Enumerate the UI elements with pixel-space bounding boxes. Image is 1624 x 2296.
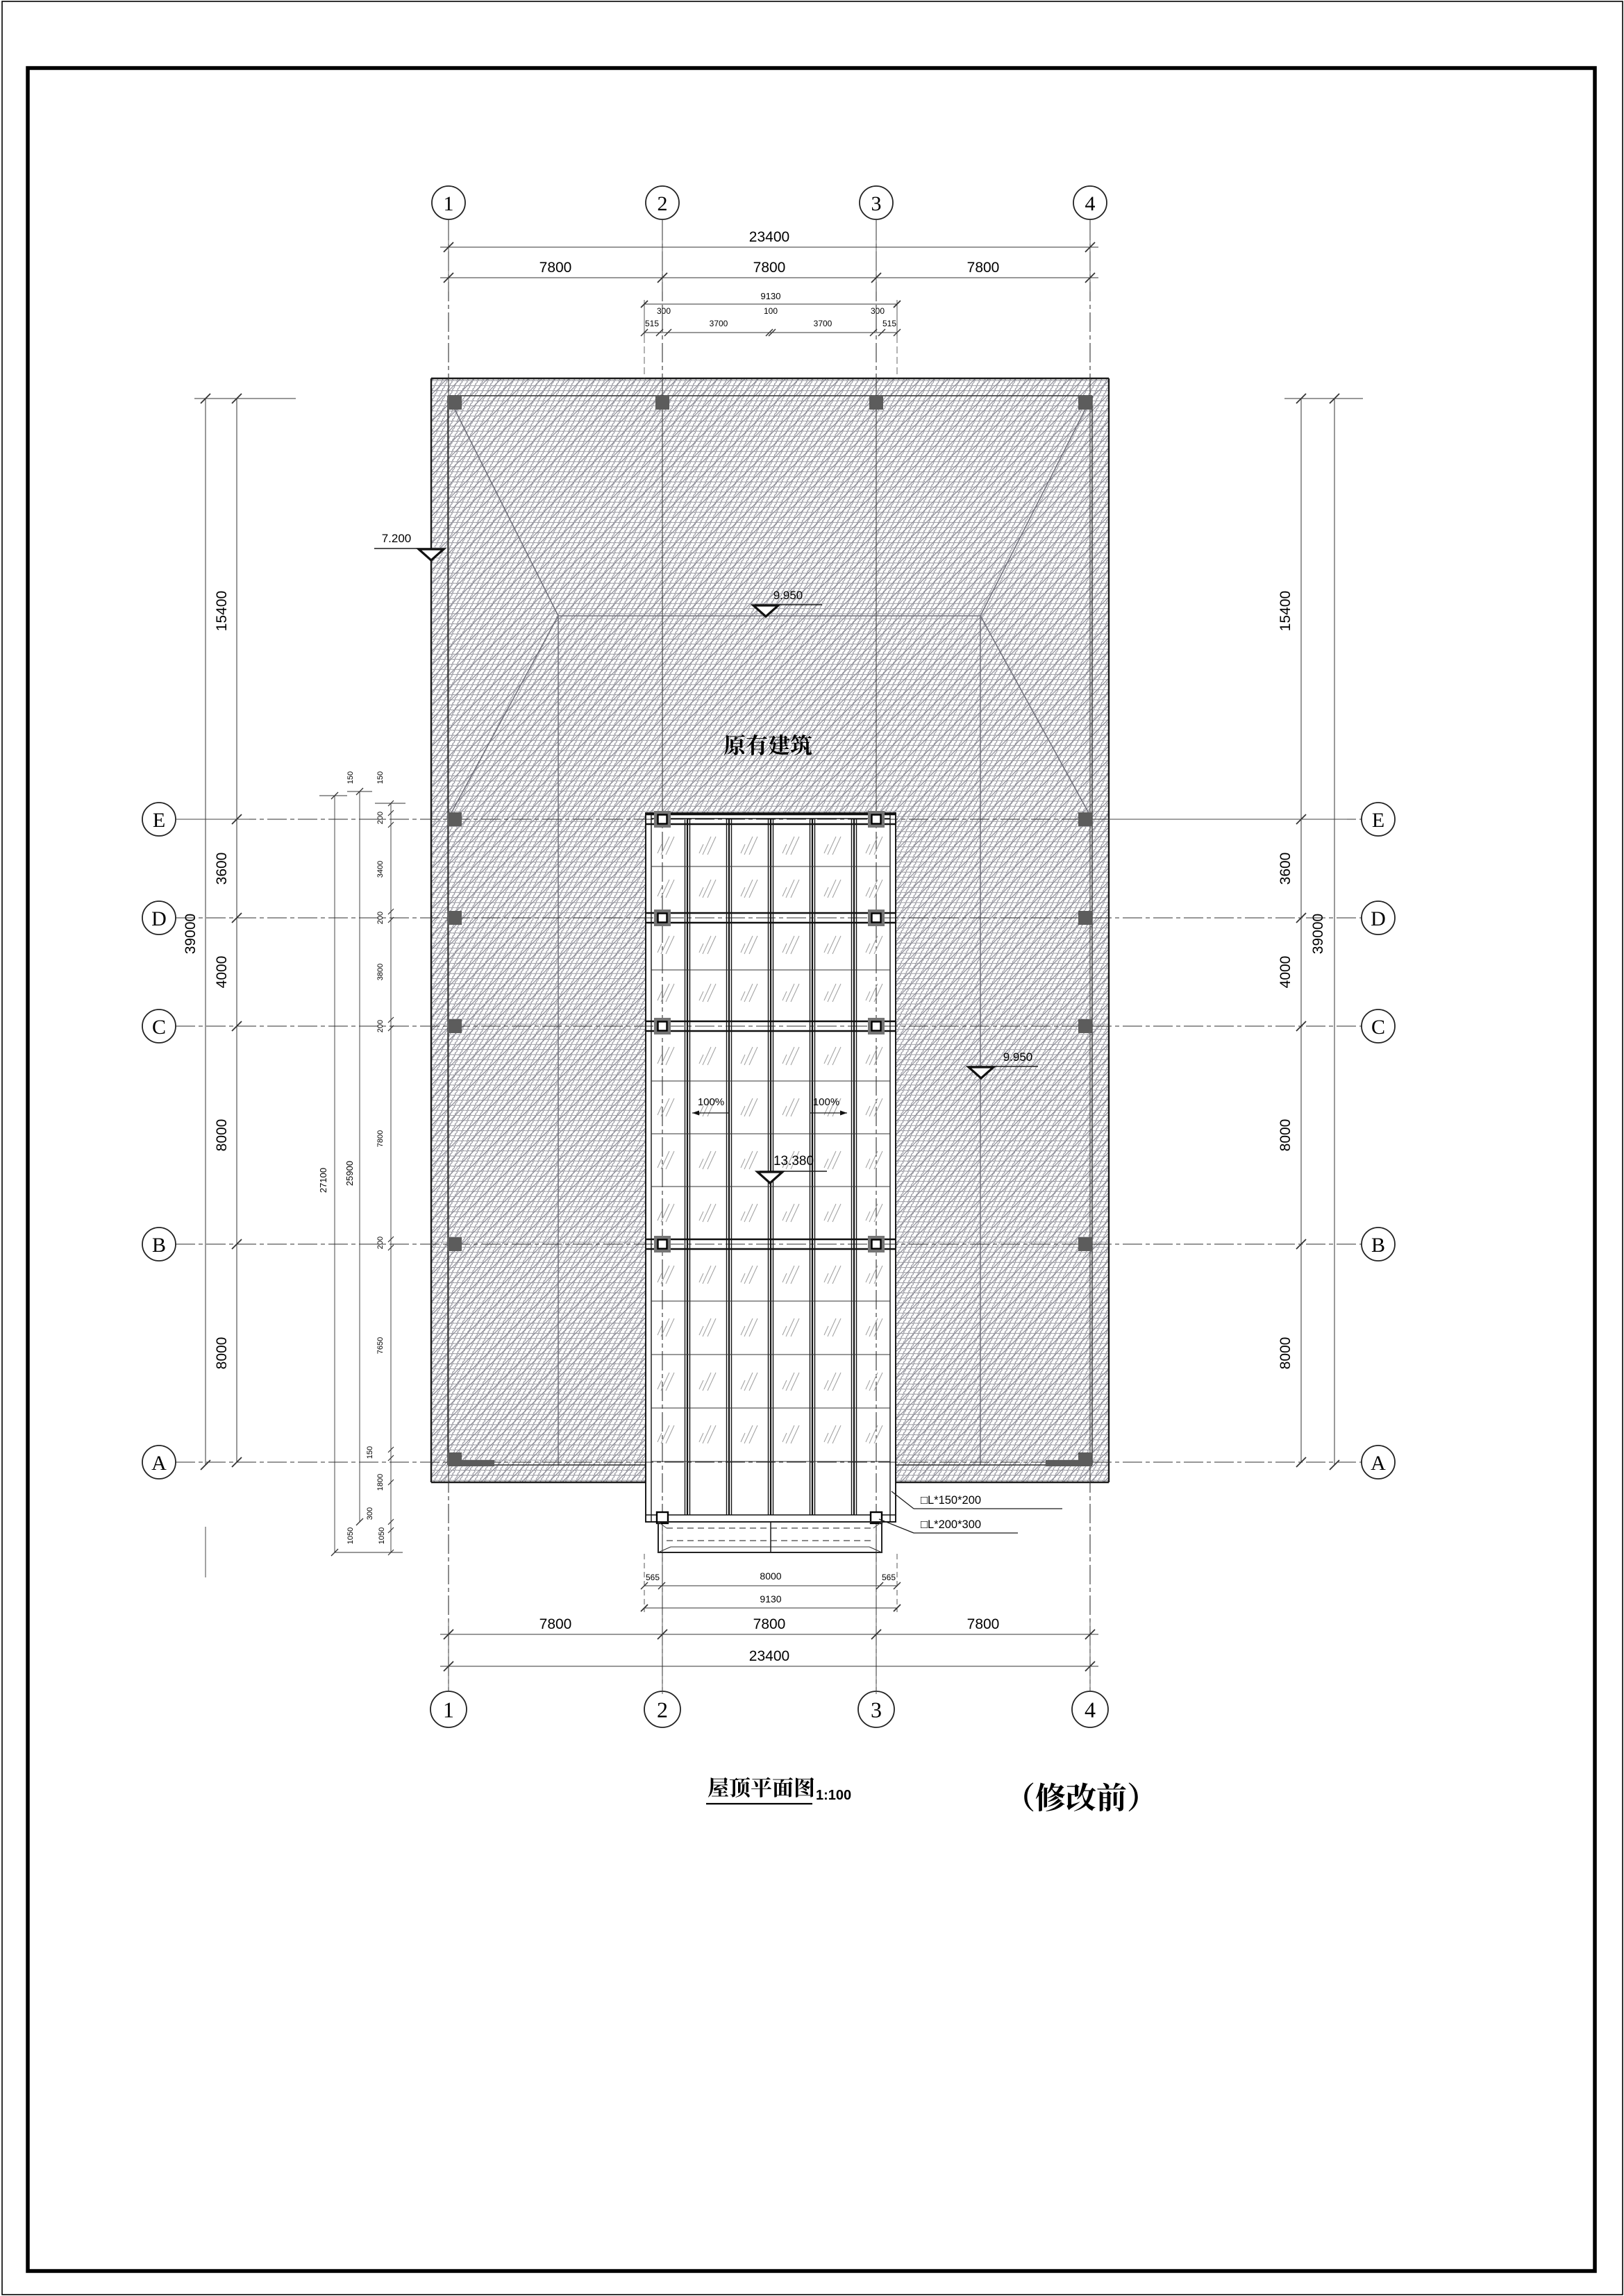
svg-text:7800: 7800: [539, 260, 572, 276]
svg-text:23400: 23400: [749, 1648, 789, 1664]
svg-text:23400: 23400: [749, 229, 789, 245]
svg-text:150: 150: [376, 771, 385, 784]
svg-text:9.950: 9.950: [1003, 1050, 1033, 1064]
svg-text:1: 1: [443, 1698, 454, 1723]
svg-text:7800: 7800: [753, 1616, 786, 1632]
svg-text:7.200: 7.200: [382, 532, 412, 545]
svg-text:8000: 8000: [214, 1119, 230, 1152]
svg-text:1800: 1800: [376, 1474, 385, 1491]
svg-text:3700: 3700: [814, 319, 832, 328]
svg-text:565: 565: [646, 1573, 660, 1582]
svg-text:3700: 3700: [710, 319, 728, 328]
svg-text:565: 565: [882, 1573, 896, 1582]
svg-text:7800: 7800: [967, 1616, 1000, 1632]
svg-text:150: 150: [366, 1446, 374, 1459]
svg-text:B: B: [152, 1234, 166, 1257]
svg-text:100: 100: [764, 306, 778, 316]
svg-text:7800: 7800: [753, 260, 786, 276]
svg-text:39000: 39000: [183, 914, 199, 954]
svg-text:27100: 27100: [318, 1168, 328, 1193]
svg-text:300: 300: [366, 1507, 374, 1520]
svg-text:4000: 4000: [1278, 956, 1294, 989]
svg-text:15400: 15400: [214, 591, 230, 631]
svg-text:7800: 7800: [539, 1616, 572, 1632]
svg-text:3800: 3800: [376, 964, 385, 980]
svg-text:4000: 4000: [214, 956, 230, 989]
svg-text:B: B: [1371, 1234, 1385, 1257]
svg-text:25900: 25900: [344, 1161, 355, 1186]
svg-text:D: D: [1371, 907, 1386, 930]
svg-text:2: 2: [657, 1698, 668, 1723]
svg-text:1: 1: [444, 192, 454, 215]
svg-text:1:100: 1:100: [816, 1788, 851, 1803]
svg-text:200: 200: [376, 912, 385, 924]
svg-text:200: 200: [376, 812, 385, 824]
svg-text:8000: 8000: [1278, 1119, 1294, 1152]
svg-text:9130: 9130: [761, 291, 781, 301]
svg-text:1050: 1050: [346, 1527, 355, 1544]
svg-text:7800: 7800: [967, 260, 1000, 276]
svg-text:39000: 39000: [1310, 914, 1326, 954]
svg-text:□L*200*300: □L*200*300: [921, 1518, 981, 1531]
svg-text:8000: 8000: [214, 1337, 230, 1370]
svg-text:13.380: 13.380: [773, 1154, 814, 1168]
svg-text:8000: 8000: [1278, 1337, 1294, 1370]
svg-text:3600: 3600: [1278, 853, 1294, 885]
svg-text:100%: 100%: [698, 1096, 724, 1108]
svg-text:515: 515: [645, 319, 659, 328]
svg-text:C: C: [152, 1016, 166, 1039]
svg-text:A: A: [1371, 1452, 1386, 1475]
svg-text:200: 200: [376, 1237, 385, 1249]
svg-text:4: 4: [1085, 1698, 1096, 1723]
svg-text:515: 515: [882, 319, 896, 328]
svg-text:3600: 3600: [214, 853, 230, 885]
svg-text:8000: 8000: [760, 1570, 781, 1582]
svg-text:3400: 3400: [376, 861, 385, 878]
svg-text:E: E: [153, 809, 165, 832]
svg-text:300: 300: [657, 306, 671, 316]
svg-text:100%: 100%: [813, 1096, 839, 1108]
svg-text:300: 300: [871, 306, 885, 316]
svg-text:E: E: [1372, 809, 1384, 832]
svg-text:1050: 1050: [378, 1527, 386, 1544]
svg-text:2: 2: [658, 192, 668, 215]
svg-text:D: D: [151, 907, 167, 930]
svg-text:15400: 15400: [1278, 591, 1294, 631]
svg-text:A: A: [151, 1452, 167, 1475]
svg-text:□L*150*200: □L*150*200: [921, 1494, 981, 1507]
svg-text:3: 3: [871, 1698, 882, 1723]
svg-text:3: 3: [871, 192, 882, 215]
svg-text:C: C: [1371, 1016, 1385, 1039]
svg-text:4: 4: [1085, 192, 1096, 215]
svg-text:9130: 9130: [760, 1593, 781, 1604]
svg-text:7800: 7800: [376, 1130, 385, 1147]
svg-text:9.950: 9.950: [773, 589, 803, 602]
svg-text:150: 150: [346, 771, 355, 784]
svg-text:200: 200: [376, 1020, 385, 1032]
svg-text:7650: 7650: [376, 1337, 385, 1354]
